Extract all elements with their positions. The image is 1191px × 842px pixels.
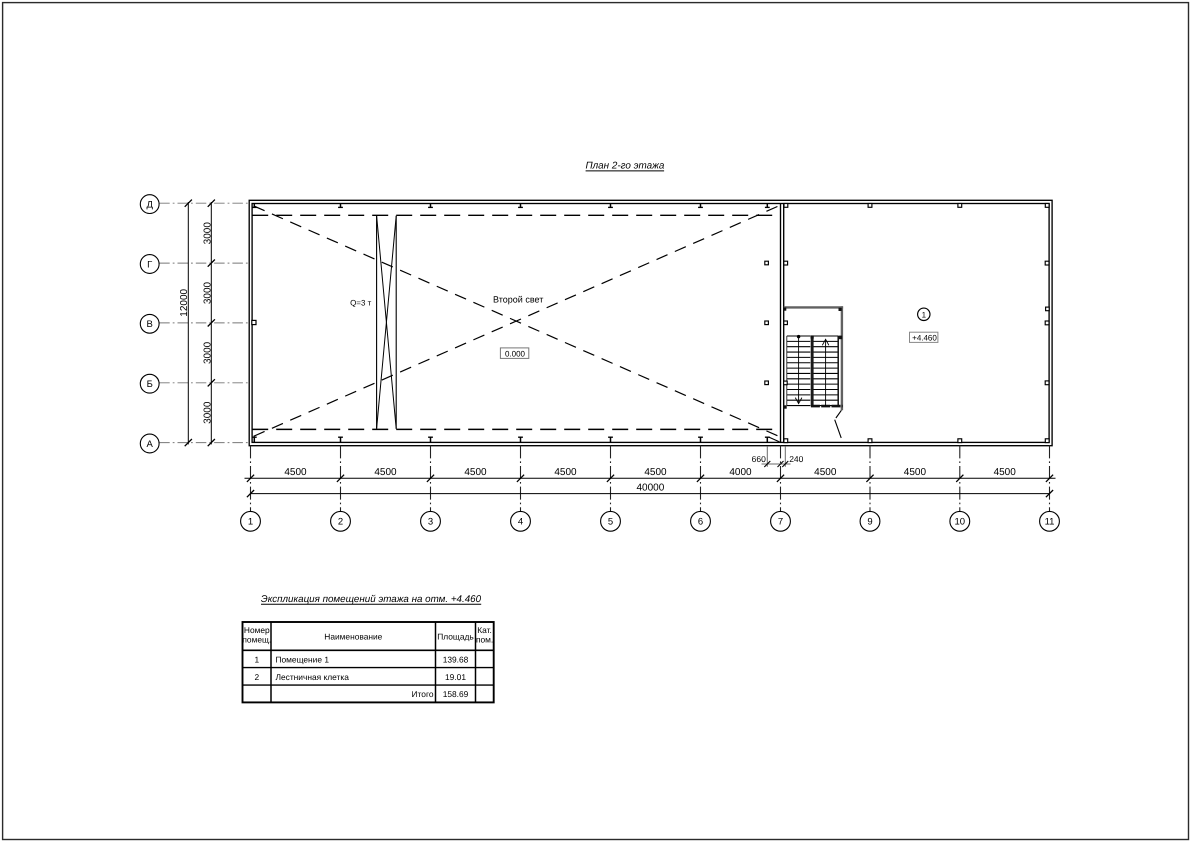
svg-text:4500: 4500 xyxy=(554,467,577,478)
svg-text:В: В xyxy=(147,319,153,330)
svg-text:12000: 12000 xyxy=(179,288,190,316)
svg-text:2: 2 xyxy=(254,672,259,682)
svg-text:Q=3 т: Q=3 т xyxy=(350,299,372,308)
svg-text:5: 5 xyxy=(608,517,613,528)
svg-text:4500: 4500 xyxy=(284,467,307,478)
svg-text:158.69: 158.69 xyxy=(443,689,469,699)
svg-text:0.000: 0.000 xyxy=(505,350,526,359)
svg-text:3000: 3000 xyxy=(202,341,213,364)
svg-text:3000: 3000 xyxy=(202,401,213,424)
svg-text:1: 1 xyxy=(254,654,259,664)
svg-text:Б: Б xyxy=(147,379,153,390)
svg-text:Наименование: Наименование xyxy=(324,631,382,641)
svg-text:Д: Д xyxy=(146,200,153,211)
svg-text:4000: 4000 xyxy=(729,467,752,478)
svg-text:Площадь: Площадь xyxy=(437,631,474,641)
svg-text:Г: Г xyxy=(147,259,152,270)
svg-text:139.68: 139.68 xyxy=(443,654,469,664)
svg-text:11: 11 xyxy=(1045,517,1055,528)
svg-text:План 2-го этажа: План 2-го этажа xyxy=(585,161,664,172)
svg-text:Итого: Итого xyxy=(412,689,434,699)
svg-text:4500: 4500 xyxy=(814,467,837,478)
svg-text:9: 9 xyxy=(867,517,872,528)
svg-text:1: 1 xyxy=(248,517,253,528)
svg-text:240: 240 xyxy=(789,454,803,464)
svg-text:4: 4 xyxy=(518,517,523,528)
svg-text:1: 1 xyxy=(922,310,927,319)
svg-text:19.01: 19.01 xyxy=(445,672,466,682)
svg-text:4500: 4500 xyxy=(644,467,667,478)
svg-text:4500: 4500 xyxy=(994,467,1017,478)
svg-text:Лестничная клетка: Лестничная клетка xyxy=(276,672,350,682)
svg-text:Номер: Номер xyxy=(244,625,270,635)
svg-text:+4.460: +4.460 xyxy=(912,333,937,342)
svg-text:3000: 3000 xyxy=(202,281,213,304)
svg-text:3000: 3000 xyxy=(202,222,213,245)
svg-text:10: 10 xyxy=(955,517,966,528)
svg-text:40000: 40000 xyxy=(636,483,664,494)
svg-text:Экспликация помещений этажа на: Экспликация помещений этажа на отм. +4.4… xyxy=(261,594,482,605)
svg-text:Второй свет: Второй свет xyxy=(493,294,543,304)
svg-text:7: 7 xyxy=(778,517,783,528)
svg-text:помещ.: помещ. xyxy=(242,635,271,645)
svg-text:2: 2 xyxy=(338,517,343,528)
svg-text:4500: 4500 xyxy=(904,467,927,478)
svg-text:4500: 4500 xyxy=(464,467,487,478)
svg-text:4500: 4500 xyxy=(374,467,397,478)
svg-text:Кат.: Кат. xyxy=(477,625,492,635)
svg-text:А: А xyxy=(147,439,154,450)
svg-text:Помещение 1: Помещение 1 xyxy=(276,654,330,664)
svg-text:6: 6 xyxy=(698,517,703,528)
svg-text:пом.: пом. xyxy=(476,635,493,645)
svg-text:3: 3 xyxy=(428,517,433,528)
svg-text:660: 660 xyxy=(752,454,766,464)
